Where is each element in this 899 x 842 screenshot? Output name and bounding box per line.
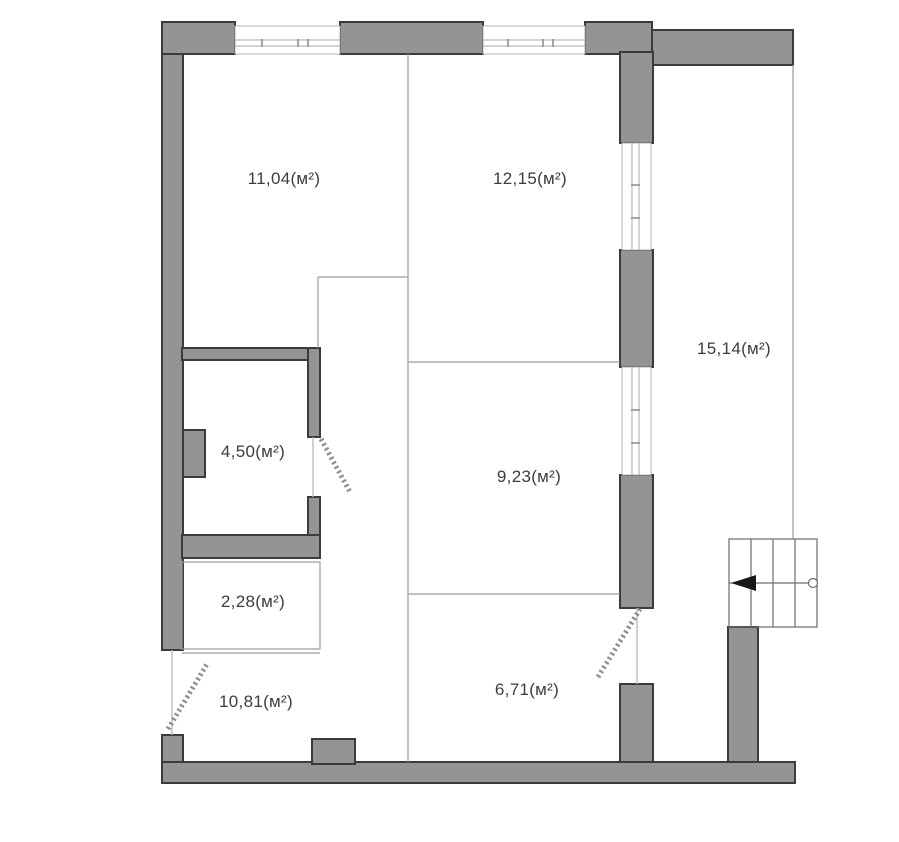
- exterior-walls: [162, 22, 795, 783]
- partition-lines: [182, 54, 793, 762]
- window-icon: [622, 367, 651, 475]
- room-area-label: 12,15(м²): [493, 169, 567, 189]
- floor-plan-drawing: [0, 0, 899, 842]
- door-swing-icon: [598, 608, 640, 684]
- room-area-label: 11,04(м²): [248, 169, 321, 189]
- door-swing-icon: [313, 437, 350, 497]
- room-area-label: 2,28(м²): [221, 592, 285, 612]
- room-area-label: 10,81(м²): [219, 692, 293, 712]
- window-icon: [483, 26, 585, 54]
- door-swing-icon: [168, 650, 207, 735]
- stairs-start-marker: [809, 579, 818, 588]
- floor-plan: 11,04(м²) 12,15(м²) 15,14(м²) 4,50(м²) 9…: [0, 0, 899, 842]
- stairs-icon: [729, 539, 818, 627]
- stairs-direction-arrow-icon: [731, 575, 756, 591]
- room-area-label: 15,14(м²): [697, 339, 771, 359]
- window-icon: [235, 26, 340, 54]
- room-area-label: 4,50(м²): [221, 442, 285, 462]
- window-icon: [622, 143, 651, 250]
- room-area-label: 6,71(м²): [495, 680, 559, 700]
- room-area-label: 9,23(м²): [497, 467, 561, 487]
